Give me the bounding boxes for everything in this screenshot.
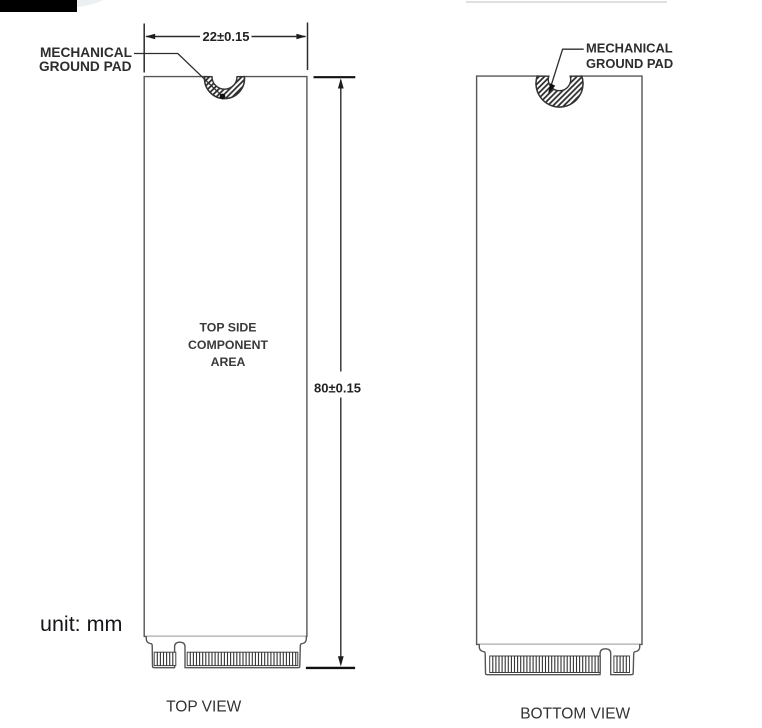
- svg-text:80±0.15: 80±0.15: [314, 381, 361, 396]
- svg-text:TOP SIDE: TOP SIDE: [200, 321, 257, 335]
- svg-text:COMPONENT: COMPONENT: [188, 338, 268, 352]
- svg-text:MECHANICAL: MECHANICAL: [40, 45, 132, 60]
- svg-text:22±0.15: 22±0.15: [203, 29, 250, 44]
- svg-text:MECHANICAL: MECHANICAL: [586, 41, 673, 56]
- svg-text:GROUND PAD: GROUND PAD: [39, 59, 132, 74]
- svg-text:BOTTOM VIEW: BOTTOM VIEW: [520, 706, 630, 723]
- svg-text:unit: mm: unit: mm: [40, 612, 122, 636]
- svg-text:AREA: AREA: [211, 355, 246, 369]
- svg-text:TOP VIEW: TOP VIEW: [166, 698, 242, 715]
- svg-text:GROUND PAD: GROUND PAD: [586, 56, 673, 71]
